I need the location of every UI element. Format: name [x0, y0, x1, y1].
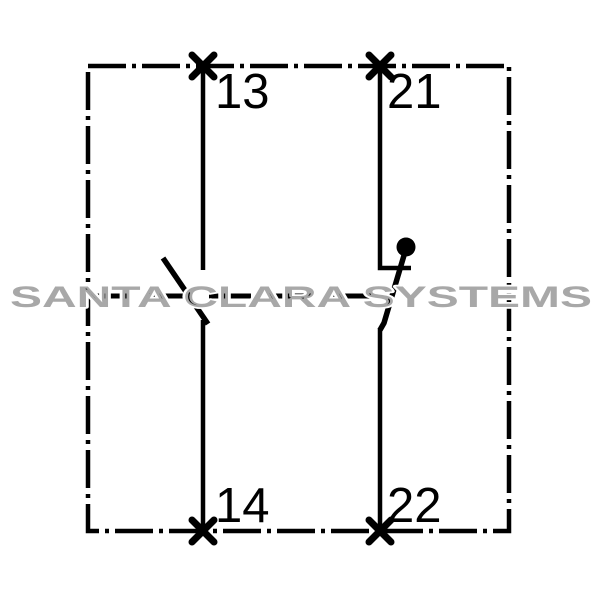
watermark-text: SANTA CLARA SYSTEMS: [10, 281, 592, 314]
terminal-label-21: 21: [387, 65, 442, 119]
terminal-label-14: 14: [215, 479, 270, 533]
terminal-label-22: 22: [387, 479, 442, 533]
schematic-page: 13 21 14 22 SANTA CLARA SYSTEMS SANTA CL…: [0, 0, 600, 600]
contact-block-schematic: 13 21 14 22 SANTA CLARA SYSTEMS SANTA CL…: [0, 0, 600, 600]
terminal-label-13: 13: [215, 65, 270, 119]
nc-contact-dot: [397, 238, 416, 257]
